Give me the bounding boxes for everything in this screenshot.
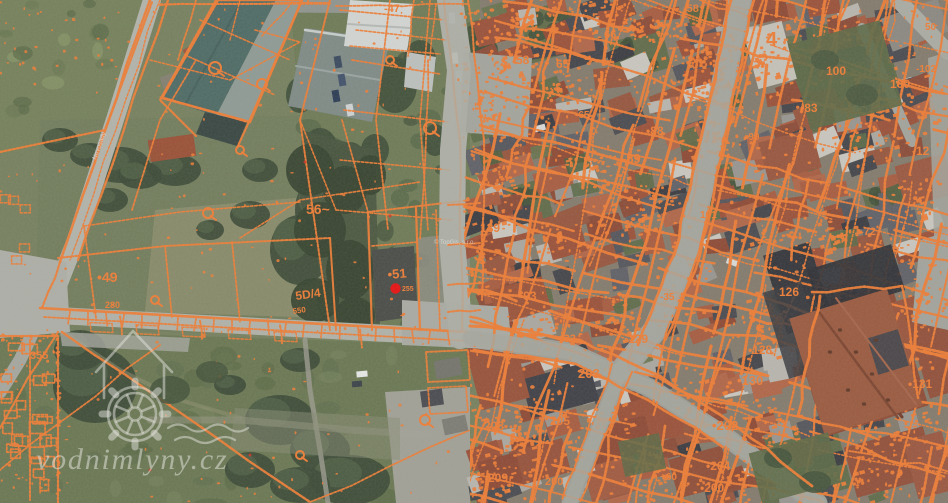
svg-text:vodnimlyny.cz: vodnimlyny.cz: [36, 443, 229, 476]
